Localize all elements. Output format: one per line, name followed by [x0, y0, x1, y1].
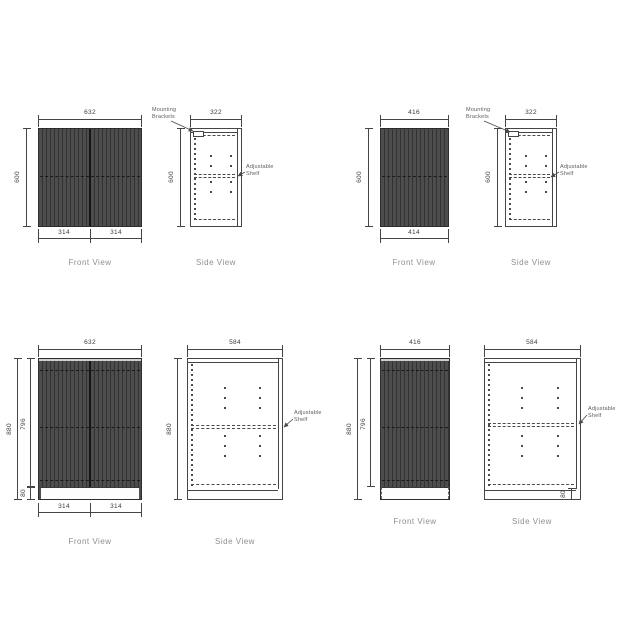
- adjustable-shelf-line: [488, 423, 574, 424]
- hidden-shelf-line: [382, 427, 448, 428]
- dimension-line-total-height: [357, 358, 358, 500]
- side-view-drawing: [484, 358, 581, 500]
- dim-depth: 584: [526, 340, 538, 347]
- dim-total-height: 880: [347, 423, 354, 435]
- bottom-panel-dash: [488, 484, 574, 485]
- fluted-door: [381, 361, 449, 488]
- pin-dots: [521, 435, 523, 457]
- top-panel-dash: [382, 370, 448, 371]
- pin-dots: [557, 435, 559, 457]
- top-panel-line: [485, 362, 576, 363]
- dimension-line-door-height: [370, 358, 371, 487]
- drawing-canvas: 632 600 314 314 Front View 322: [0, 0, 640, 640]
- panel-base-cabinet-416: 416 880 796 Front View 584 80 Adjustable…: [0, 0, 640, 640]
- adjustable-shelf-annotation: Adjustable Shelf: [588, 406, 620, 420]
- dim-door-height: 796: [361, 418, 368, 430]
- dim-width: 416: [409, 340, 421, 347]
- dimension-line-kick: [571, 488, 572, 500]
- front-view-drawing: [380, 358, 450, 500]
- side-view-label: Side View: [512, 517, 552, 526]
- pin-dots: [557, 387, 559, 409]
- dimension-line-depth: [484, 349, 581, 350]
- adjustable-shelf-line: [488, 426, 574, 427]
- dimension-line-width: [380, 349, 450, 350]
- pin-dots: [521, 387, 523, 409]
- front-view-label: Front View: [393, 517, 436, 526]
- kickboard: [381, 487, 449, 499]
- bottom-panel-dash: [382, 480, 448, 481]
- dim-kick: 80: [561, 490, 568, 498]
- door-edge-strip: [576, 359, 580, 489]
